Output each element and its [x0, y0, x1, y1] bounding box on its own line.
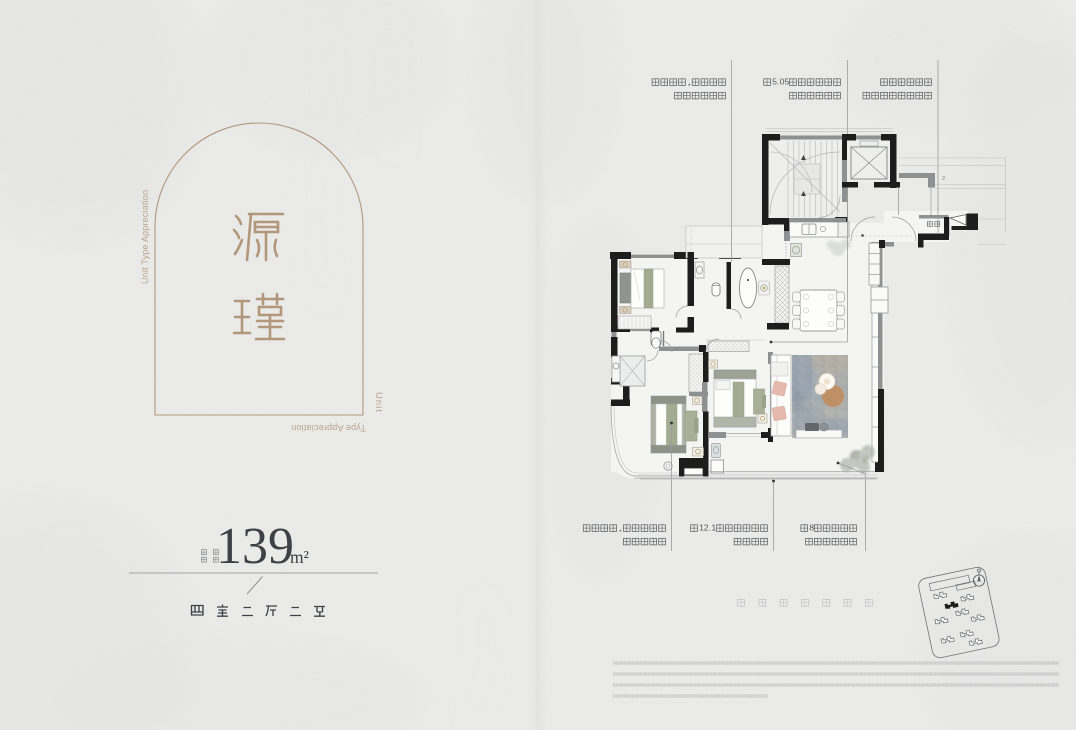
svg-text:5: 5: [784, 77, 789, 87]
svg-text:1: 1: [711, 523, 716, 533]
svg-text:Unit: Unit: [373, 392, 384, 413]
svg-text:8: 8: [809, 523, 814, 533]
svg-text:139: 139: [216, 518, 294, 575]
svg-text:2: 2: [942, 176, 945, 182]
svg-text:Unit Type Appreciation: Unit Type Appreciation: [140, 190, 150, 284]
svg-text:m²: m²: [290, 547, 309, 567]
svg-text:Type Appreciation: Type Appreciation: [291, 423, 366, 433]
